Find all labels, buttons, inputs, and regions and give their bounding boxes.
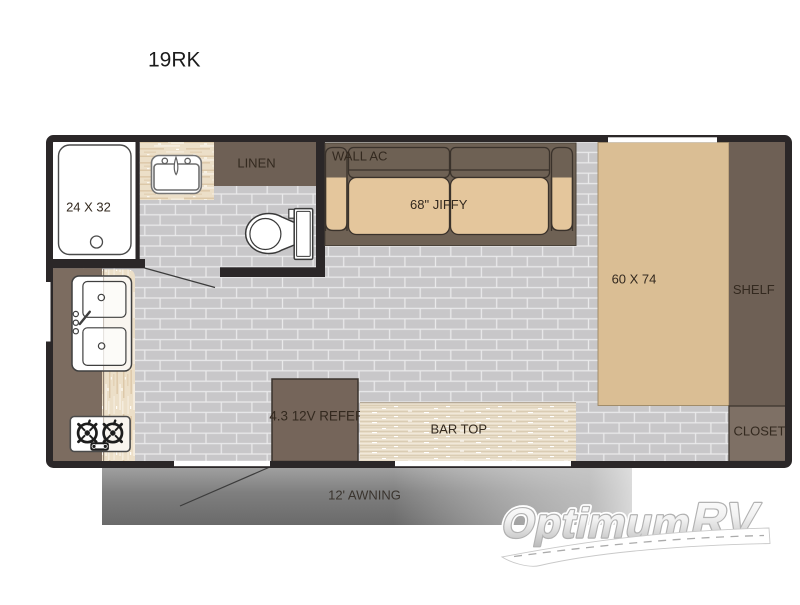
svg-text:60 X 74: 60 X 74 (612, 272, 657, 287)
svg-text:19RK: 19RK (148, 49, 201, 72)
svg-text:12' AWNING: 12' AWNING (328, 488, 401, 503)
svg-text:4.3 12V REFER: 4.3 12V REFER (269, 409, 365, 424)
svg-text:68" JIFFY: 68" JIFFY (410, 197, 468, 212)
svg-text:SHELF: SHELF (733, 282, 775, 297)
svg-text:24 X 32: 24 X 32 (66, 200, 111, 215)
svg-text:CLOSET: CLOSET (733, 424, 785, 439)
svg-text:WALL AC: WALL AC (332, 149, 387, 164)
svg-text:BAR TOP: BAR TOP (430, 422, 487, 437)
svg-text:LINEN: LINEN (237, 156, 275, 171)
